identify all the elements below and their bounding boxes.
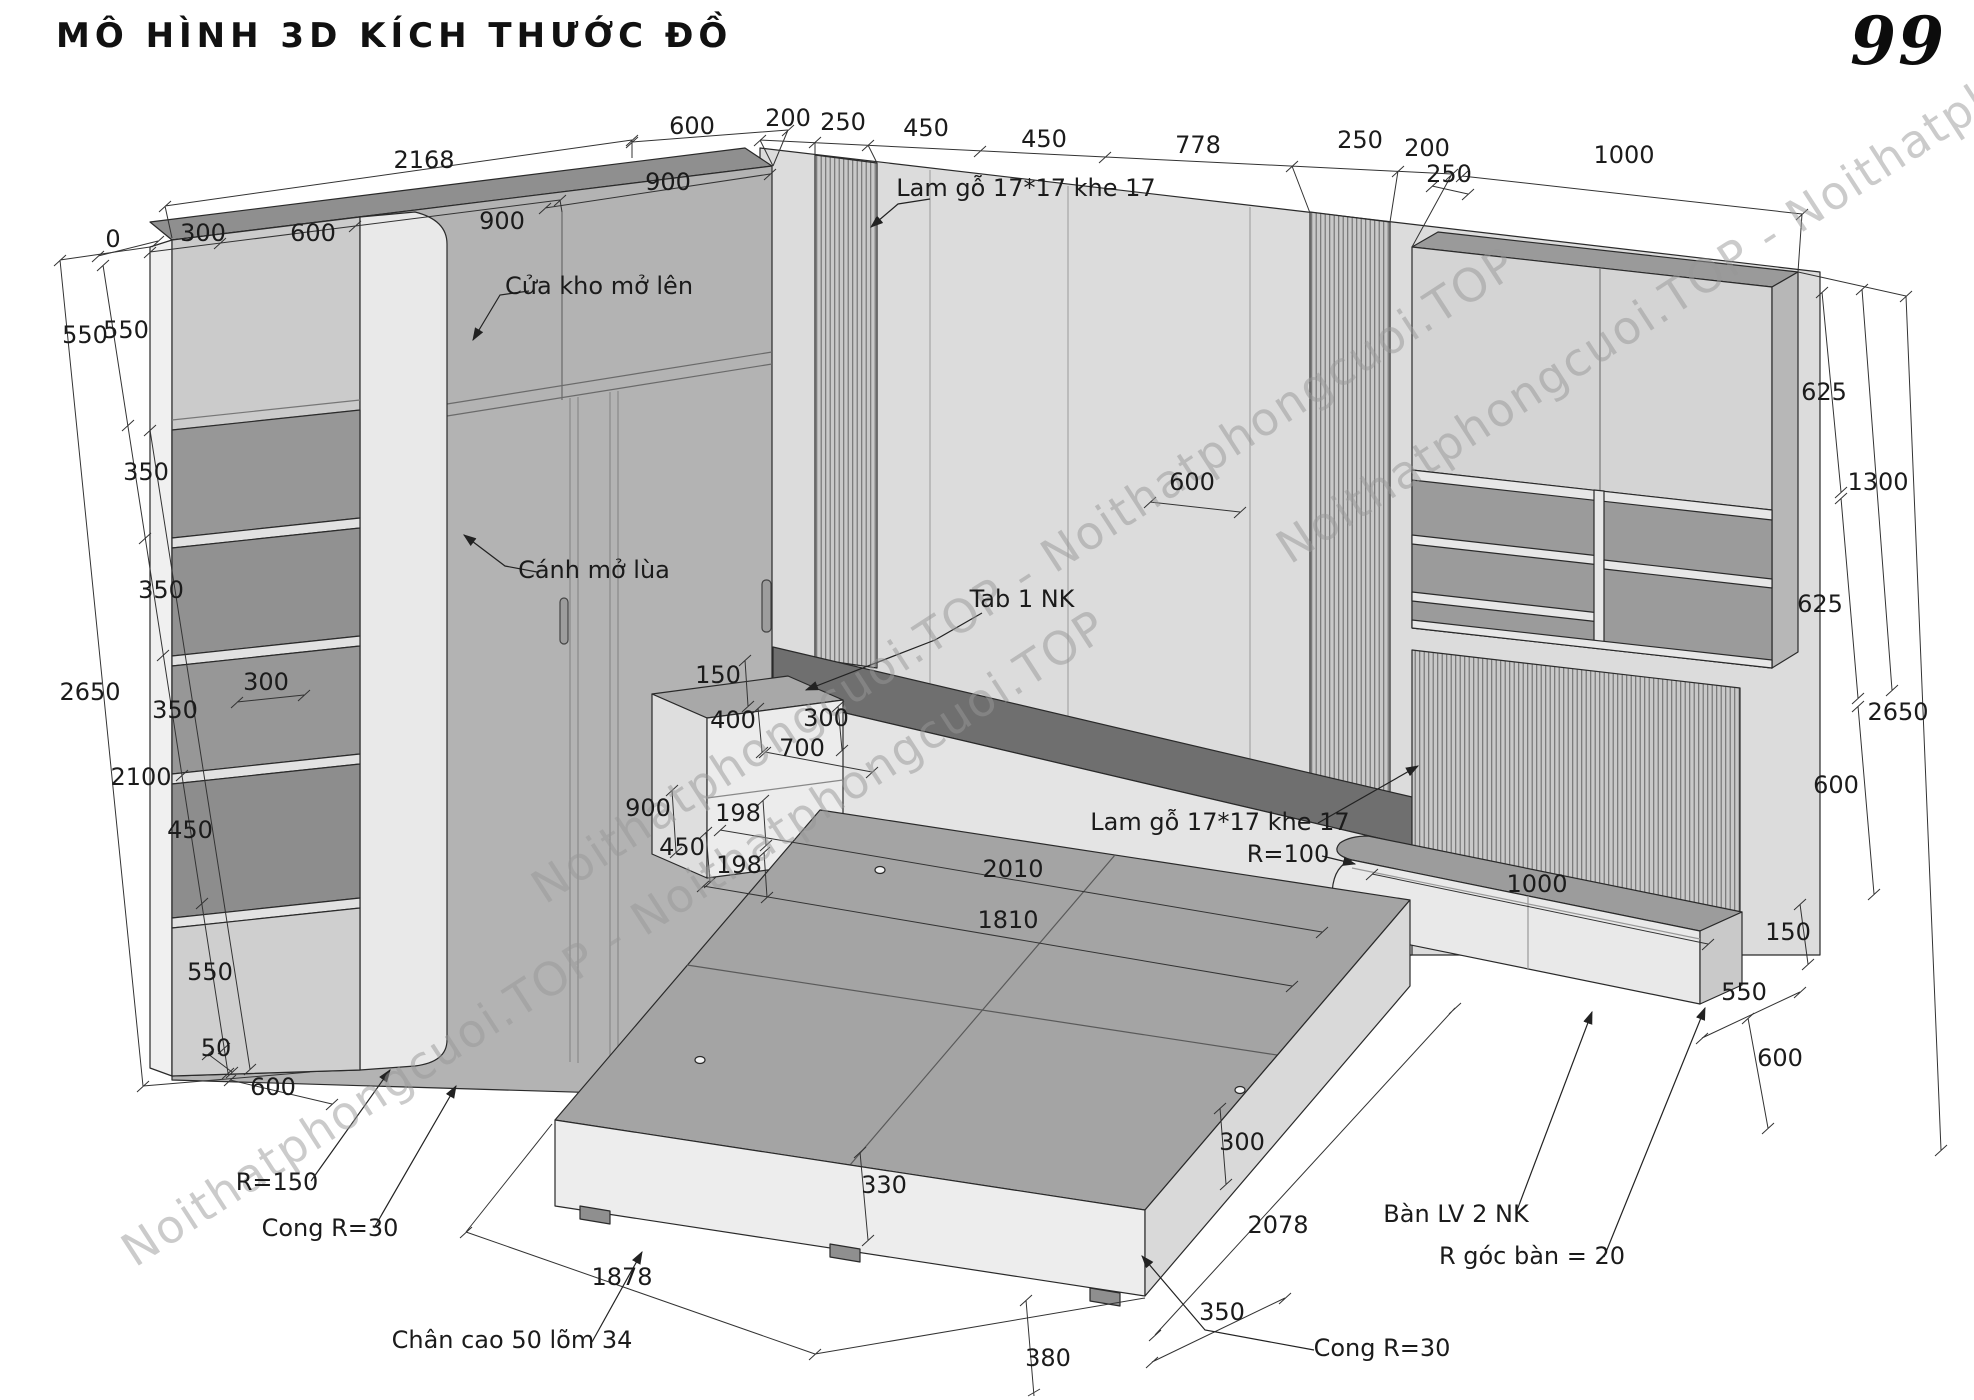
dimension-label: 450 [1021,125,1067,153]
cabinet-corner-column [360,212,447,1070]
part-label: Cửa kho mở lên [505,272,693,300]
dimension-label: 778 [1175,131,1221,159]
dimension-label: 550 [103,316,149,344]
part-label: R=150 [236,1168,319,1196]
dimension-label: 150 [695,661,741,689]
dimension-label: 600 [1757,1044,1803,1072]
dimension-label: 350 [1199,1298,1245,1326]
dimension-label: 300 [243,668,289,696]
wall-unit-side [1772,272,1798,668]
dimension-label: 300 [1219,1128,1265,1156]
dimension-label: 550 [187,958,233,986]
dimension-label: 2100 [110,763,171,791]
dimension-label: 2650 [1867,698,1928,726]
dimension-label: 250 [1337,126,1383,154]
part-label: Lam gỗ 17*17 khe 17 [1090,807,1349,836]
dimension-label: 400 [710,706,756,734]
dimension-label: 900 [625,794,671,822]
dimension-label: 2078 [1247,1211,1308,1239]
dimension-label: 600 [669,112,715,140]
dimension-label: 50 [201,1034,232,1062]
dimension-label: 0 [105,225,120,253]
dimension-label: 450 [167,816,213,844]
dimension-label: 350 [123,458,169,486]
dimension-label: 300 [803,704,849,732]
part-label: R góc bàn = 20 [1439,1242,1625,1270]
dimension-label: 300 [180,219,226,247]
dimension-label: 250 [820,108,866,136]
dimension-label: 450 [659,833,705,861]
part-label: Cong R=30 [1314,1334,1451,1362]
drawing-page: MÔ HÌNH 3D KÍCH THƯỚC ĐỒ 99 [0,0,1974,1400]
dimension-label: 900 [479,207,525,235]
dimension-label: 2010 [982,855,1043,883]
dimension-label: 198 [715,799,761,827]
dimension-label: 1300 [1847,468,1908,496]
dimension-label: 600 [290,219,336,247]
part-label: Cánh mở lùa [518,556,670,584]
dimension-label: 1000 [1593,141,1654,169]
dimension-label: 200 [765,104,811,132]
part-label: Chân cao 50 lõm 34 [392,1326,633,1354]
part-label: Lam gỗ 17*17 khe 17 [896,173,1155,202]
dimension-label: 1810 [977,906,1038,934]
part-label: R=100 [1247,840,1330,868]
dimension-label: 250 [1426,160,1472,188]
dimension-label: 550 [1721,978,1767,1006]
dimension-label: 625 [1801,378,1847,406]
dimension-label: 2168 [393,146,454,174]
dimension-label: 200 [1404,134,1450,162]
dimension-label: 1878 [591,1263,652,1291]
dimension-label: 600 [1813,771,1859,799]
wardrobe-handle-left [560,598,568,644]
dimension-label: 330 [861,1171,907,1199]
part-label: Bàn LV 2 NK [1383,1200,1530,1228]
dimension-label: 700 [779,734,825,762]
dimension-label: 600 [1169,468,1215,496]
dimension-label: 350 [152,696,198,724]
dimension-label: 625 [1797,590,1843,618]
dimension-label: 150 [1765,918,1811,946]
dimension-label: 550 [62,321,108,349]
wardrobe-handle-right [762,580,771,632]
part-label: Tab 1 NK [969,585,1076,613]
dimension-label: 198 [716,851,762,879]
dimension-label: 900 [645,168,691,196]
furniture-3d-drawing: Noithatphongcuoi.TOP - Noithatphongcuoi.… [0,0,1974,1400]
slat-panel-left [815,155,877,668]
dimension-label: 350 [138,576,184,604]
dimension-label: 600 [250,1073,296,1101]
dimension-label: 450 [903,114,949,142]
dimension-label: 1000 [1506,870,1567,898]
part-label: Cong R=30 [262,1214,399,1242]
dimension-label: 380 [1025,1344,1071,1372]
dimension-label: 2650 [59,678,120,706]
